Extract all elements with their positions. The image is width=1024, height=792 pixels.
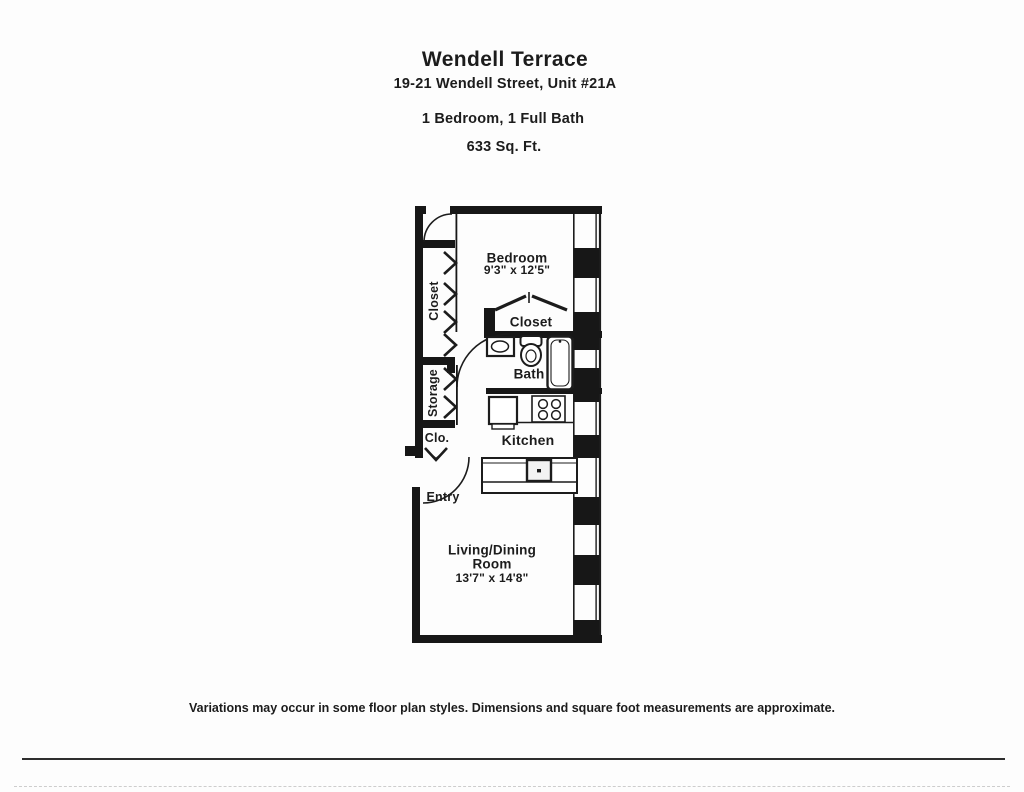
floor-plan-drawing	[0, 0, 1024, 792]
footer-rule	[22, 758, 1005, 760]
disclaimer-text: Variations may occur in some floor plan …	[189, 701, 835, 715]
kitchen-label: Kitchen	[502, 432, 555, 448]
window-wall-blocks	[574, 248, 599, 635]
bedroom-closet-label: Closet	[510, 315, 552, 330]
footer-dashed-rule	[14, 786, 1010, 787]
bathtub-icon	[548, 337, 573, 390]
living-room-label-line2: Room	[472, 557, 511, 572]
storage-label: Storage	[426, 369, 440, 417]
living-room-dimensions: 13'7" x 14'8"	[455, 571, 528, 585]
toilet-icon	[521, 336, 542, 366]
bedroom-door-arc	[424, 214, 452, 242]
living-room-label: Living/Dining	[448, 543, 536, 558]
floor-plan-page: Wendell Terrace 19-21 Wendell Street, Un…	[0, 0, 1024, 792]
entry-label: Entry	[427, 490, 460, 504]
bedroom-dimensions: 9'3" x 12'5"	[484, 263, 550, 277]
bifold-door-icon	[495, 292, 567, 310]
clo-label: Clo.	[425, 431, 449, 445]
kitchen-counter-icon	[482, 458, 577, 493]
hall-closet-label: Closet	[427, 281, 441, 320]
refrigerator-icon	[489, 397, 517, 429]
stove-icon	[517, 396, 574, 423]
bath-sink-icon	[487, 337, 514, 356]
bath-label: Bath	[514, 367, 545, 382]
